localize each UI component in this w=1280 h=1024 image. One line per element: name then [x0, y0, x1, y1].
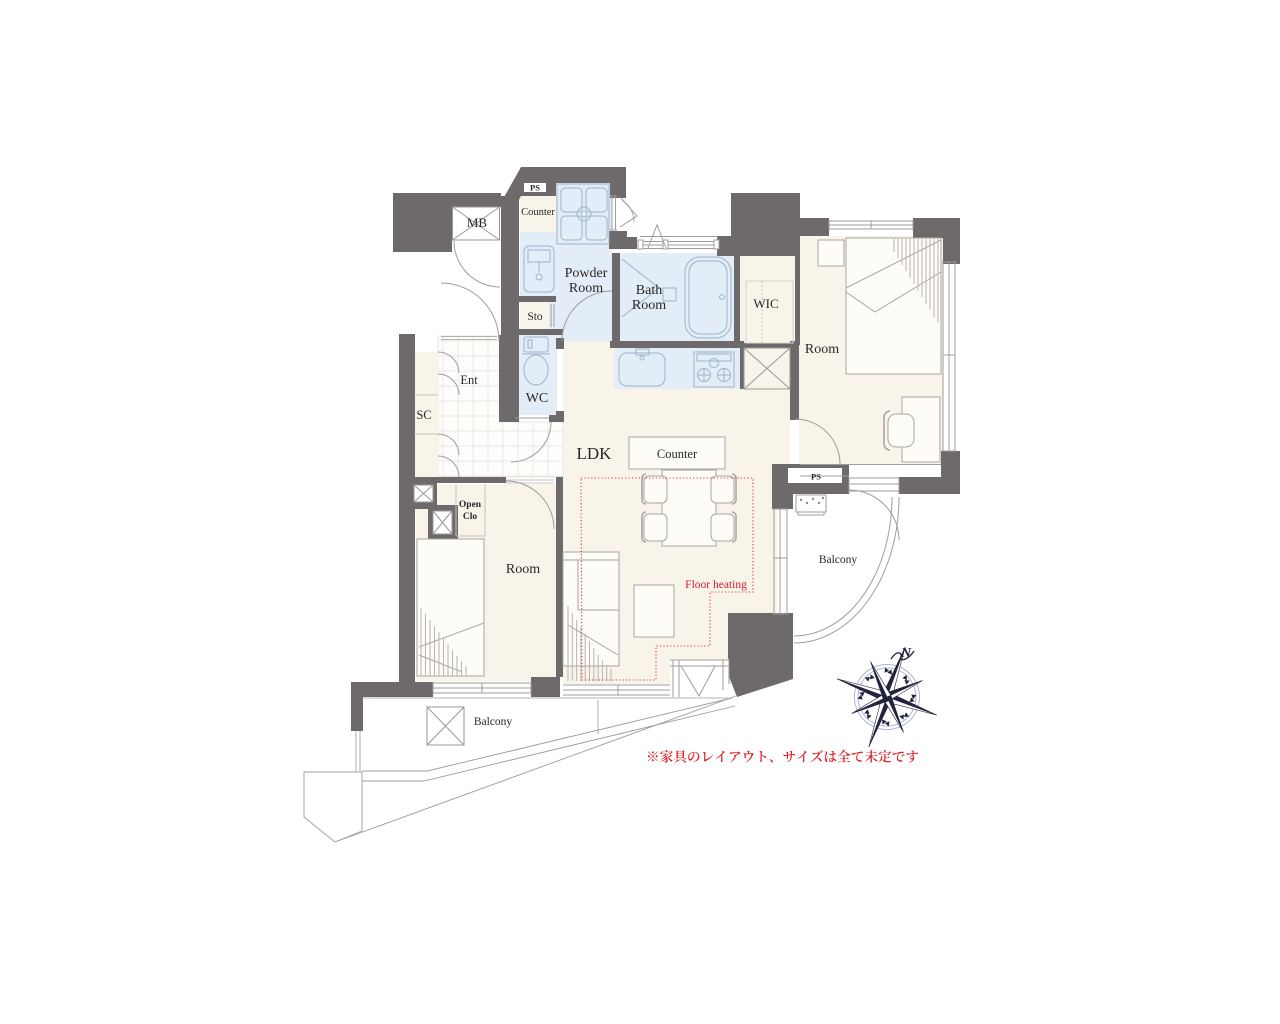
svg-text:Room: Room: [506, 562, 540, 577]
svg-text:Balcony: Balcony: [474, 716, 513, 728]
svg-text:Floor heating: Floor heating: [685, 579, 747, 591]
svg-text:Balcony: Balcony: [819, 554, 858, 566]
svg-text:WC: WC: [526, 391, 549, 406]
svg-text:Powder: Powder: [565, 266, 608, 281]
svg-text:Room: Room: [632, 298, 666, 313]
svg-text:WIC: WIC: [753, 296, 778, 311]
svg-text:MB: MB: [467, 215, 488, 230]
svg-text:Counter: Counter: [521, 207, 555, 218]
svg-text:LDK: LDK: [577, 444, 613, 463]
svg-text:PS: PS: [811, 472, 821, 482]
svg-text:Sto: Sto: [527, 311, 543, 323]
svg-text:Ent: Ent: [460, 373, 478, 387]
svg-text:Room: Room: [569, 281, 603, 296]
svg-text:Counter: Counter: [657, 447, 698, 461]
svg-text:Clo: Clo: [463, 512, 478, 522]
svg-text:SC: SC: [416, 408, 431, 422]
svg-text:Room: Room: [805, 342, 839, 357]
svg-text:PS: PS: [530, 183, 540, 193]
svg-text:Bath: Bath: [636, 283, 662, 298]
svg-text:Open: Open: [459, 500, 482, 510]
